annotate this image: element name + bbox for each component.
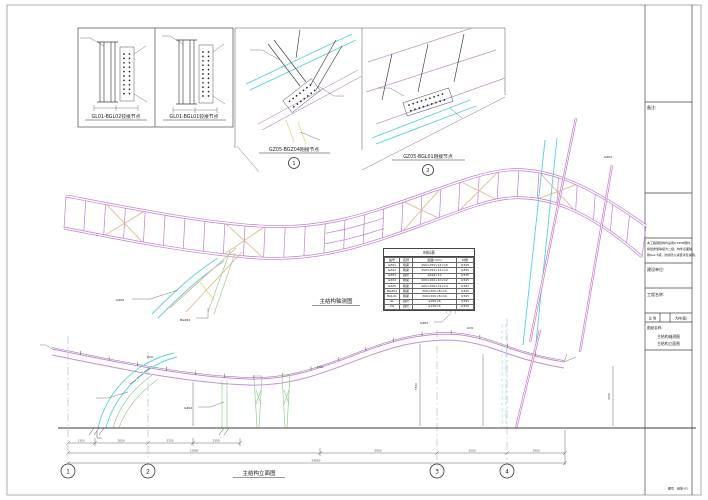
callout-gz02: GZ02 — [604, 155, 612, 159]
grid-bubble-4: 4 — [505, 468, 509, 475]
cad-drawing-sheet: GL01-BGL02铰接节点 GL01-BGL01铰接节点 GZ05-BGZ04… — [0, 0, 708, 500]
svg-text:2250: 2250 — [166, 439, 173, 443]
axon-view-title: 主结构轴测图 — [319, 297, 353, 305]
svg-text:1350: 1350 — [77, 439, 84, 443]
svg-text:2900: 2900 — [532, 449, 539, 453]
detail-gz05-bgz04: GZ05-BGZ04刚接节点 1 — [235, 28, 505, 172]
sheet-name-2: 主结构立面图 — [657, 341, 680, 346]
detail-gl01-bgl01: GL01-BGL01铰接节点 — [162, 36, 226, 120]
svg-text:3500: 3500 — [468, 449, 475, 453]
svg-text:5560: 5560 — [414, 383, 418, 390]
grid-bubble-1: 1 — [66, 468, 70, 475]
material-table: 材料表 编号名称截面(mm)材质 GZ01箱梁450×250×14×16Q345… — [383, 248, 475, 311]
svg-text:24850: 24850 — [312, 459, 321, 463]
axon-view: GZ05 BGZ04 GZ03 GZ02 主结构轴测图 — [64, 118, 646, 352]
scale-label: 比 例 — [649, 315, 656, 320]
detail-gl01-bgl02: GL01-BGL02铰接节点 — [80, 38, 147, 120]
svg-text:2: 2 — [426, 168, 429, 174]
notes-line-1: 本工程钢结构均采用Q345B钢材， — [647, 240, 693, 245]
sheet-name-label: 图纸名称: — [647, 325, 663, 330]
grid-bubbles: 1 2 3 4 — [61, 464, 514, 478]
notes-line-2: 焊缝质量等级为二级；构件表面除 — [647, 246, 692, 251]
elev-view-title: 主结构立面图 — [242, 469, 276, 477]
owner-label: 建设单位: — [647, 266, 664, 272]
detail-scale-label: 大样(图) — [675, 315, 687, 320]
axon-bottom-chord — [64, 198, 642, 259]
sheet-no-value: 结施-05 — [677, 486, 688, 491]
svg-text:3260: 3260 — [607, 393, 611, 400]
title-block: 备注: 本工程钢结构均采用Q345B钢材， 焊缝质量等级为二级；构件表面除 锈S… — [645, 102, 698, 491]
svg-text:2350: 2350 — [212, 439, 219, 443]
material-table-title: 材料表 — [384, 249, 474, 257]
callout-gz03: GZ03 — [420, 321, 428, 325]
dimension-chains: 1350 2650 2250 2350 12600 5850 3500 2900… — [66, 430, 567, 465]
detail-gz05-bgl01: GZ05-BGL01刚接节点 2 — [362, 28, 505, 176]
callout-gz05: GZ05 — [116, 298, 124, 302]
elev-beam-top — [52, 334, 564, 379]
svg-text:12600: 12600 — [190, 449, 199, 453]
sheet-no-label: 图号: — [668, 486, 675, 491]
notes-line-3: 锈Sa2.5级，防腐防火涂装详见说明。 — [647, 252, 698, 257]
project-label: 工程名称: — [647, 291, 664, 297]
svg-text:2000: 2000 — [467, 326, 474, 330]
svg-text:2000: 2000 — [147, 355, 154, 359]
material-table-grid: 编号名称截面(mm)材质 GZ01箱梁450×250×14×16Q345GZ02… — [384, 257, 474, 310]
grid-bubble-3: 3 — [435, 468, 439, 475]
detail-2-label: GL01-BGL01铰接节点 — [170, 113, 219, 120]
svg-text:5850: 5850 — [374, 449, 381, 453]
svg-text:1: 1 — [292, 161, 295, 167]
svg-text:2650: 2650 — [117, 439, 124, 443]
detail-3-label: GZ05-BGZ04刚接节点 — [269, 146, 319, 153]
sheet-name-1: 主结构轴测图 — [657, 334, 680, 339]
drawing-canvas: GL01-BGL02铰接节点 GL01-BGL01铰接节点 GZ05-BGZ04… — [0, 0, 708, 500]
detail-4-label: GZ05-BGL01刚接节点 — [403, 153, 453, 160]
grid-bubble-2: 2 — [146, 468, 150, 475]
svg-text:2000: 2000 — [317, 365, 324, 369]
callout-bgz04: BGZ04 — [180, 318, 190, 322]
callout-gz04: GZ04 — [184, 406, 192, 410]
detail-panels-gl: GL01-BGL02铰接节点 GL01-BGL01铰接节点 — [78, 28, 233, 127]
remark-label: 备注: — [647, 104, 656, 110]
detail-1-label: GL01-BGL02铰接节点 — [92, 113, 141, 120]
elevation-view: 2000 2000 2000 GZ04 5560 3260 1350 2650 — [40, 318, 696, 478]
